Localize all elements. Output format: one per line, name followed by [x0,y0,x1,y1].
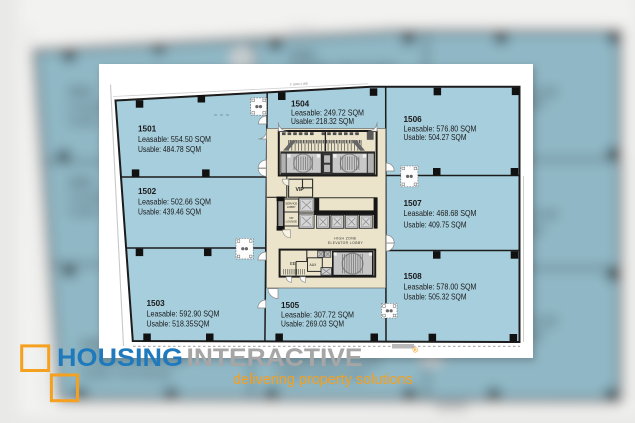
svg-text:delivering property solutions: delivering property solutions [233,371,413,388]
svg-text:INTERACTIVE: INTERACTIVE [187,344,363,372]
svg-text:®: ® [413,346,419,355]
svg-text:HOUSING: HOUSING [57,344,183,372]
